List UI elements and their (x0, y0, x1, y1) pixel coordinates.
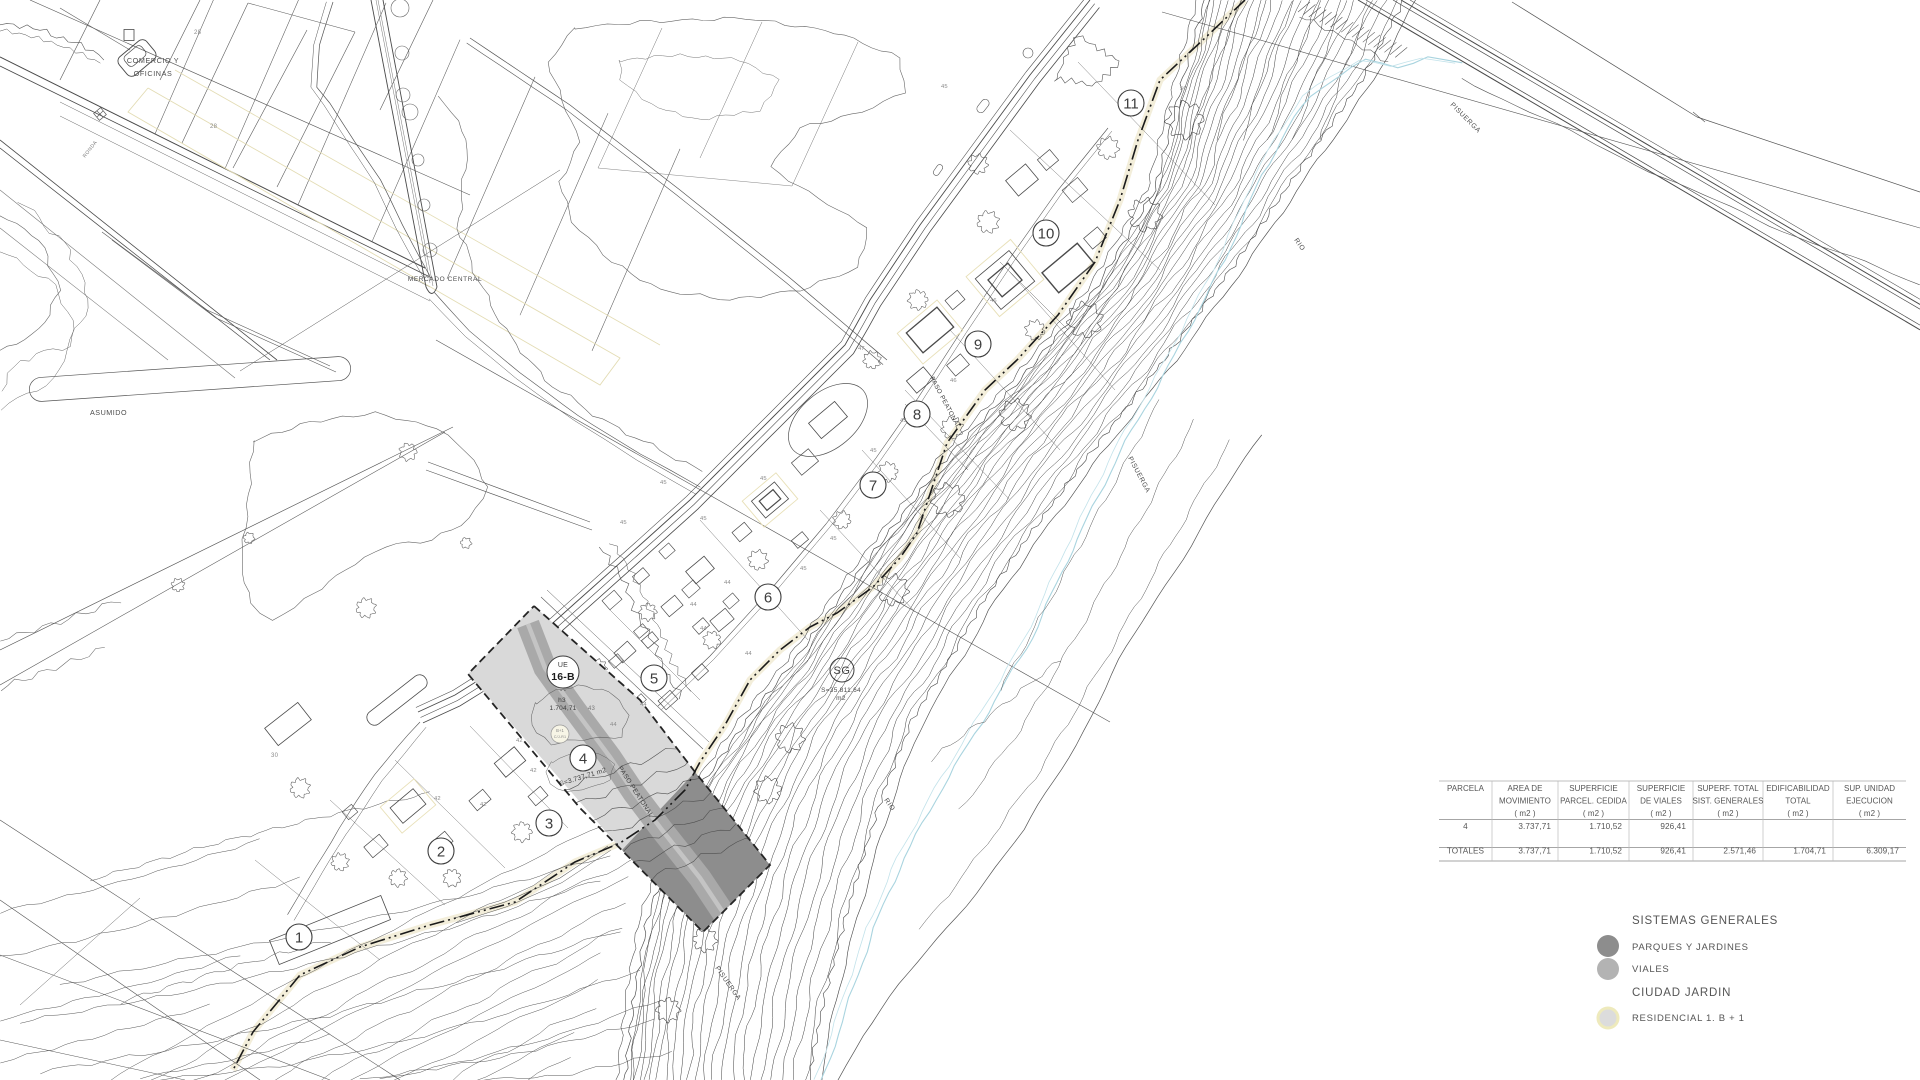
svg-text:TOTAL: TOTAL (1785, 797, 1811, 806)
svg-text:DE VIALES: DE VIALES (1640, 797, 1682, 806)
svg-text:SUP. UNIDAD: SUP. UNIDAD (1844, 784, 1895, 793)
svg-text:45: 45 (941, 84, 948, 90)
svg-text:926,41: 926,41 (1660, 847, 1686, 856)
svg-text:( m2 ): ( m2 ) (1650, 809, 1671, 818)
svg-text:CIUDAD JARDIN: CIUDAD JARDIN (1632, 987, 1731, 999)
svg-text:28: 28 (194, 30, 202, 36)
svg-text:45: 45 (870, 448, 877, 454)
svg-text:1.704,71: 1.704,71 (1793, 847, 1826, 856)
svg-text:3.737,71: 3.737,71 (1518, 847, 1551, 856)
svg-text:44: 44 (640, 702, 647, 708)
svg-text:UE: UE (558, 662, 568, 669)
svg-text:4: 4 (579, 750, 587, 767)
svg-text:PARQUES Y JARDINES: PARQUES Y JARDINES (1632, 942, 1749, 953)
svg-text:46: 46 (990, 298, 997, 304)
svg-text:( m2 ): ( m2 ) (1787, 809, 1808, 818)
svg-text:30: 30 (271, 753, 279, 759)
svg-text:MERCADO CENTRAL: MERCADO CENTRAL (408, 276, 482, 283)
svg-text:6.309,17: 6.309,17 (1866, 847, 1899, 856)
svg-text:44: 44 (700, 626, 707, 632)
svg-text:SUPERFICIE: SUPERFICIE (1637, 784, 1686, 793)
svg-text:50: 50 (1180, 86, 1187, 92)
svg-text:1: 1 (295, 929, 303, 946)
svg-text:COMERCIO Y: COMERCIO Y (127, 56, 179, 65)
svg-text:45: 45 (660, 480, 667, 486)
svg-text:42: 42 (530, 768, 537, 774)
svg-text:6: 6 (764, 589, 772, 606)
svg-text:1.710,52: 1.710,52 (1589, 847, 1622, 856)
svg-text:VIALES: VIALES (1632, 964, 1669, 975)
svg-text:ASUMIDO: ASUMIDO (90, 408, 127, 417)
svg-text:28: 28 (210, 124, 218, 130)
svg-text:SIST. GENERALES: SIST. GENERALES (1693, 797, 1764, 806)
svg-text:44: 44 (745, 651, 752, 657)
svg-text:5: 5 (650, 670, 658, 687)
svg-text:44: 44 (690, 602, 697, 608)
svg-text:45: 45 (800, 566, 807, 572)
svg-text:44: 44 (610, 722, 617, 728)
svg-text:2.571,46: 2.571,46 (1723, 847, 1756, 856)
svg-text:45: 45 (700, 516, 707, 522)
svg-text:45: 45 (620, 520, 627, 526)
svg-text:SUPERFICIE: SUPERFICIE (1569, 784, 1618, 793)
svg-text:45: 45 (830, 536, 837, 542)
svg-text:42: 42 (480, 802, 487, 808)
svg-text:43: 43 (588, 706, 596, 712)
svg-text:45: 45 (760, 476, 767, 482)
svg-text:m2: m2 (836, 695, 846, 702)
svg-text:TOTALES: TOTALES (1447, 847, 1485, 856)
svg-text:44: 44 (724, 580, 731, 586)
svg-text:10: 10 (1038, 225, 1055, 242)
svg-text:42: 42 (434, 796, 441, 802)
svg-text:- -: - - (560, 688, 566, 694)
svg-text:( m2 ): ( m2 ) (1717, 809, 1738, 818)
svg-text:3.737,71: 3.737,71 (1518, 822, 1551, 831)
svg-text:4: 4 (1463, 822, 1468, 831)
svg-text:926,41: 926,41 (1660, 822, 1686, 831)
svg-text:SG: SG (834, 665, 851, 677)
svg-text:42: 42 (516, 738, 523, 744)
svg-text:EJECUCION: EJECUCION (1846, 797, 1893, 806)
svg-text:47: 47 (858, 346, 865, 352)
svg-text:AREA DE: AREA DE (1507, 784, 1542, 793)
svg-text:9: 9 (974, 336, 982, 353)
svg-text:C/J-R1: C/J-R1 (554, 735, 566, 739)
svg-text:7: 7 (869, 477, 877, 494)
svg-text:45: 45 (900, 418, 907, 424)
svg-text:EDIFICABILIDAD: EDIFICABILIDAD (1766, 784, 1830, 793)
svg-text:3: 3 (545, 815, 553, 832)
svg-text:1.704,71: 1.704,71 (550, 705, 577, 712)
svg-text:16-B: 16-B (551, 671, 575, 683)
svg-text:SUPERF. TOTAL: SUPERF. TOTAL (1697, 784, 1759, 793)
svg-text:B+1: B+1 (556, 728, 564, 733)
svg-text:MOVIMIENTO: MOVIMIENTO (1499, 797, 1551, 806)
svg-text:PARCELA: PARCELA (1447, 784, 1485, 793)
svg-text:RESIDENCIAL 1. B + 1: RESIDENCIAL 1. B + 1 (1632, 1013, 1745, 1024)
svg-text:h3: h3 (558, 697, 566, 704)
svg-text:SISTEMAS GENERALES: SISTEMAS GENERALES (1632, 915, 1778, 927)
svg-text:46: 46 (950, 378, 957, 384)
svg-text:11: 11 (1123, 95, 1139, 112)
svg-text:( m2 ): ( m2 ) (1859, 809, 1880, 818)
svg-text:( m2 ): ( m2 ) (1583, 809, 1604, 818)
svg-text:PARCEL. CEDIDA: PARCEL. CEDIDA (1560, 797, 1627, 806)
svg-text:OFICINAS: OFICINAS (134, 69, 173, 78)
svg-text:8: 8 (913, 406, 921, 423)
svg-text:S=35.811,64: S=35.811,64 (821, 687, 861, 694)
svg-text:2: 2 (437, 843, 445, 860)
svg-text:1.710,52: 1.710,52 (1589, 822, 1622, 831)
svg-text:( m2 ): ( m2 ) (1514, 809, 1535, 818)
